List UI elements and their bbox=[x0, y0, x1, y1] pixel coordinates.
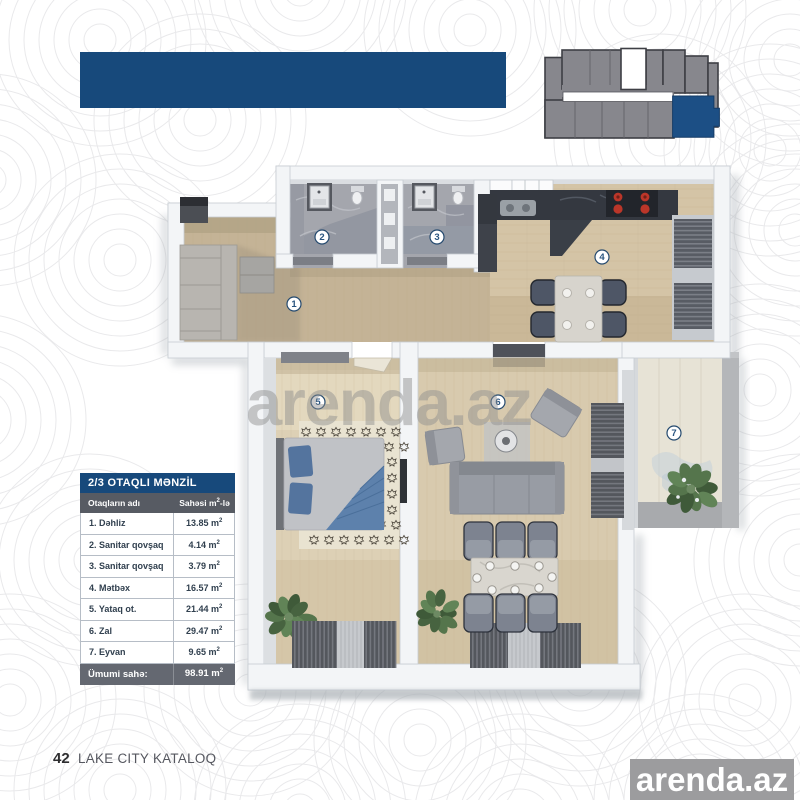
svg-text:3: 3 bbox=[434, 232, 439, 243]
svg-text:7: 7 bbox=[671, 428, 676, 439]
svg-text:2: 2 bbox=[319, 232, 324, 243]
svg-text:4: 4 bbox=[599, 252, 605, 263]
svg-text:1: 1 bbox=[291, 299, 297, 310]
